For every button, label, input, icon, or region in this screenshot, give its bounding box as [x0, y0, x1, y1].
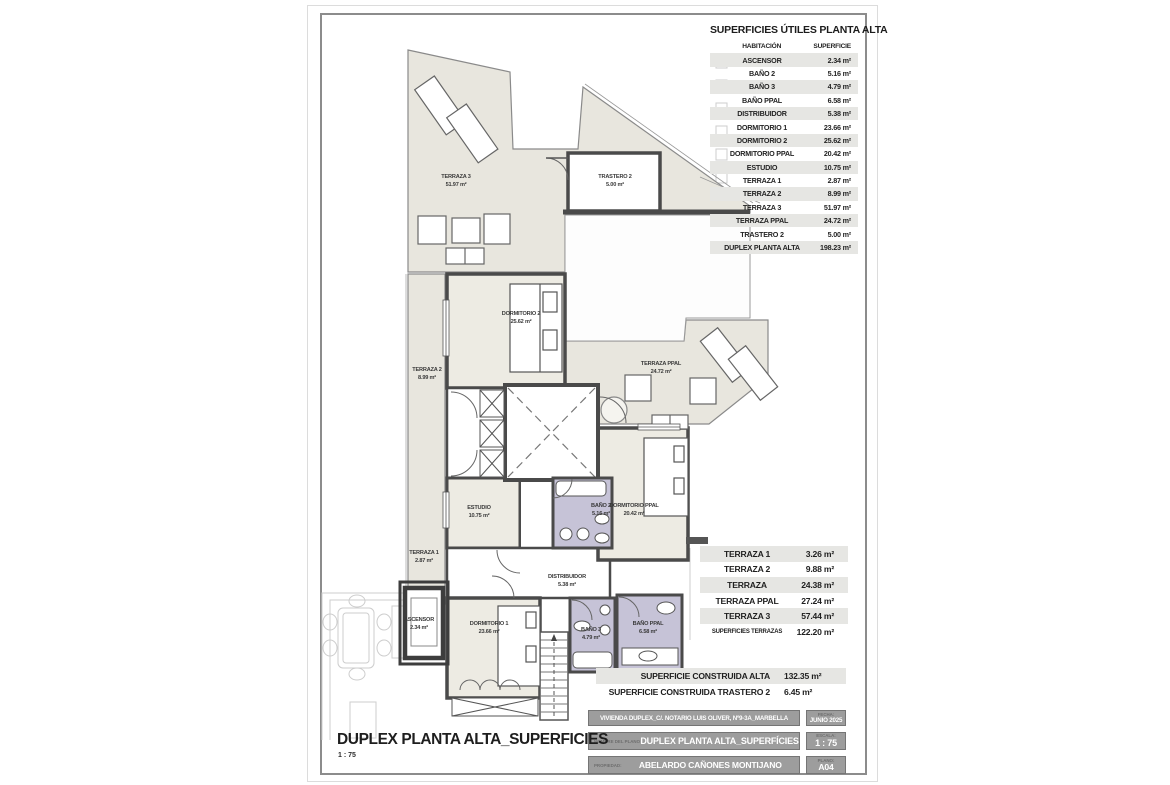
drawing-sheet-canvas: TERRAZA 351.97 m² TRASTERO 25.00 m² DORM… — [0, 0, 1170, 785]
title-block: VIVIENDA DUPLEX_C/. NOTARIO LUIS OLIVER,… — [588, 710, 846, 780]
table-row: TRASTERO 25.00 m² — [710, 227, 858, 240]
table-row: TERRAZA 351.97 m² — [710, 201, 858, 214]
date-box: FECHA: JUNIO 2025 — [806, 710, 846, 726]
label-ascensor: ASCENSOR2.34 m² — [404, 616, 434, 632]
section-marker — [686, 537, 708, 544]
table-row: TERRAZA 13.26 m² — [700, 546, 848, 562]
table-row: DORMITORIO 225.62 m² — [710, 134, 858, 147]
scale-box: ESCALA: 1 : 75 — [806, 732, 846, 750]
label-terraza3: TERRAZA 351.97 m² — [441, 173, 470, 189]
label-bano3: BAÑO 34.79 m² — [581, 626, 601, 642]
table-title: SUPERFICIES ÚTILES PLANTA ALTA — [710, 24, 858, 36]
table-row: TERRAZA 28.99 m² — [710, 187, 858, 200]
project-name-box: VIVIENDA DUPLEX_C/. NOTARIO LUIS OLIVER,… — [588, 710, 800, 726]
table-row: DORMITORIO PPAL20.42 m² — [710, 147, 858, 160]
superficies-utiles-table: SUPERFICIES ÚTILES PLANTA ALTA HABITACIÓ… — [710, 24, 858, 254]
label-dormitorio-ppal: DORMITORIO PPAL20.42 m² — [609, 502, 658, 518]
table-row: TERRAZA 29.88 m² — [700, 562, 848, 578]
table-header: HABITACIÓN SUPERFICIE — [710, 40, 858, 53]
table-row: TERRAZA 12.87 m² — [710, 174, 858, 187]
table-row: ASCENSOR2.34 m² — [710, 53, 858, 66]
double-height-shaft — [505, 385, 598, 480]
plan-name-box: NOMBRE DEL PLANO DUPLEX PLANTA ALTA_SUPE… — [588, 732, 800, 750]
stairs — [540, 632, 568, 720]
table-row: TERRAZA24.38 m² — [700, 577, 848, 593]
label-terraza-ppal: TERRAZA PPAL24.72 m² — [641, 360, 681, 376]
table-row: BAÑO 25.16 m² — [710, 67, 858, 80]
table-row: ESTUDIO10.75 m² — [710, 161, 858, 174]
table-row: SUPERFICIE CONSTRUIDA TRASTERO 26.45 m² — [596, 684, 846, 700]
table-row: DORMITORIO 123.66 m² — [710, 120, 858, 133]
title-block-row-project: VIVIENDA DUPLEX_C/. NOTARIO LUIS OLIVER,… — [588, 710, 846, 726]
label-terraza2: TERRAZA 28.99 m² — [412, 366, 441, 382]
table-row: BAÑO PPAL6.58 m² — [710, 94, 858, 107]
label-dormitorio2: DORMITORIO 225.62 m² — [502, 310, 541, 326]
owner-box: PROPIEDAD: ABELARDO CAÑONES MONTIJANO — [588, 756, 800, 774]
terrazas-table: TERRAZA 13.26 m² TERRAZA 29.88 m² TERRAZ… — [700, 546, 848, 640]
table-row: DISTRIBUIDOR5.38 m² — [710, 107, 858, 120]
superficie-construida-table: SUPERFICIE CONSTRUIDA ALTA132.35 m² SUPE… — [596, 668, 846, 700]
label-trastero2: TRASTERO 25.00 m² — [598, 173, 631, 189]
table-row-total: DUPLEX PLANTA ALTA198.23 m² — [710, 241, 858, 254]
label-dormitorio1: DORMITORIO 123.66 m² — [470, 620, 509, 636]
title-block-row-owner: PROPIEDAD: ABELARDO CAÑONES MONTIJANO PL… — [588, 756, 846, 774]
table-row: SUPERFICIE CONSTRUIDA ALTA132.35 m² — [596, 668, 846, 684]
label-estudio: ESTUDIO10.75 m² — [467, 504, 490, 520]
label-bano2: BAÑO 25.16 m² — [591, 502, 611, 518]
label-terraza1: TERRAZA 12.87 m² — [409, 549, 438, 565]
table-row-total: SUPERFICIES TERRAZAS122.20 m² — [700, 624, 848, 640]
table-row: BAÑO 34.79 m² — [710, 80, 858, 93]
plan-title: DUPLEX PLANTA ALTA_SUPERFICIES — [337, 731, 608, 749]
table-row: TERRAZA PPAL24.72 m² — [710, 214, 858, 227]
plan-scale: 1 : 75 — [338, 752, 356, 759]
table-row: TERRAZA 357.44 m² — [700, 608, 848, 624]
title-block-row-plan-name: NOMBRE DEL PLANO DUPLEX PLANTA ALTA_SUPE… — [588, 732, 846, 750]
sheet-number-box: PLANO: A04 — [806, 756, 846, 774]
table-row: TERRAZA PPAL27.24 m² — [700, 593, 848, 609]
label-distribuidor: DISTRIBUIDOR5.38 m² — [548, 573, 586, 589]
label-bano-ppal: BAÑO PPAL6.58 m² — [633, 620, 664, 636]
